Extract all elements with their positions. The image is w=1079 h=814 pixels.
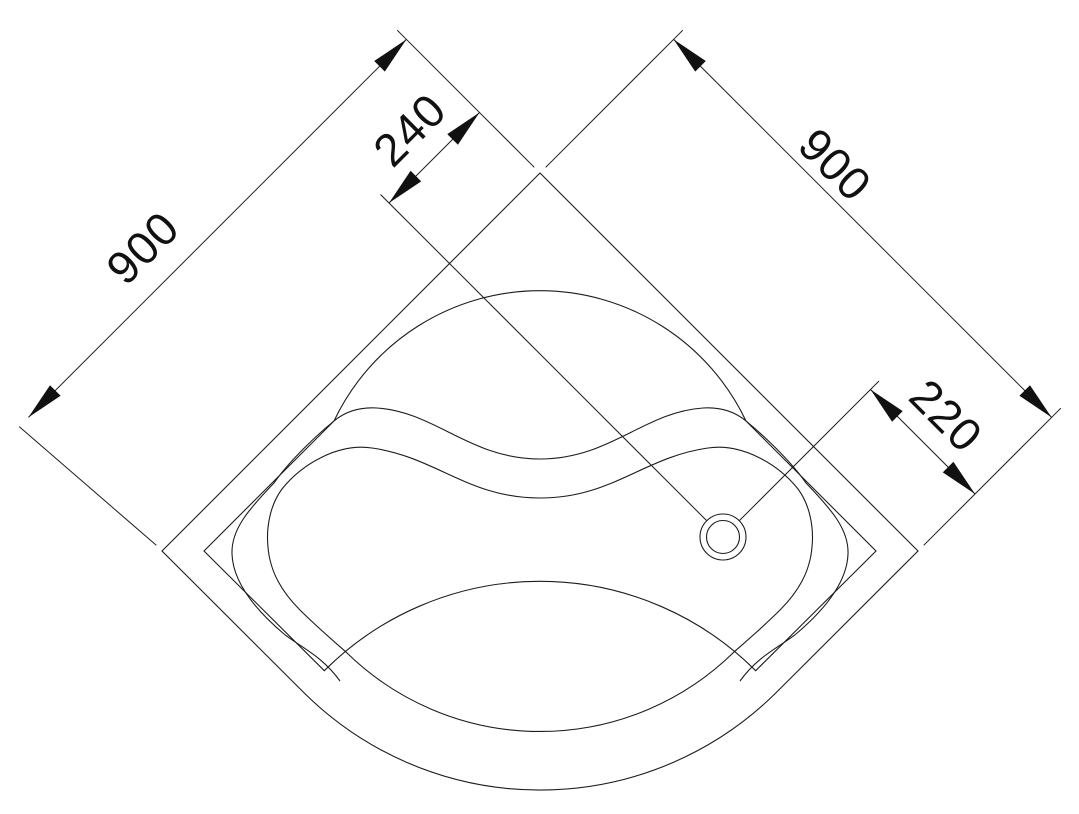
dimension-right-900: 900 [546, 30, 1061, 545]
extension-line-to-drain [740, 381, 879, 520]
dimension-text-left-900: 900 [96, 201, 189, 294]
drain-inner-circle [707, 521, 740, 554]
drawing-sheet: 900 900 240 220 [0, 0, 1079, 814]
extension-line-to-drain [381, 195, 707, 521]
shower-tray-technical-drawing: 900 900 240 220 [0, 0, 1079, 814]
dimension-text-240: 240 [363, 83, 456, 176]
extension-line [546, 30, 683, 167]
dimension-240: 240 [363, 83, 706, 520]
ledge-front-wave [232, 408, 848, 681]
dimension-line [674, 39, 1052, 417]
dimension-220: 220 [740, 369, 993, 520]
extension-line [19, 427, 156, 546]
dimension-line [28, 39, 406, 417]
tray-outline-group [162, 173, 918, 790]
dimension-left-900: 900 [19, 30, 534, 545]
basin-outline [268, 447, 813, 731]
ledge-back-arc [334, 291, 746, 421]
dimension-text-220: 220 [900, 369, 993, 462]
dimension-text-right-900: 900 [789, 118, 882, 211]
